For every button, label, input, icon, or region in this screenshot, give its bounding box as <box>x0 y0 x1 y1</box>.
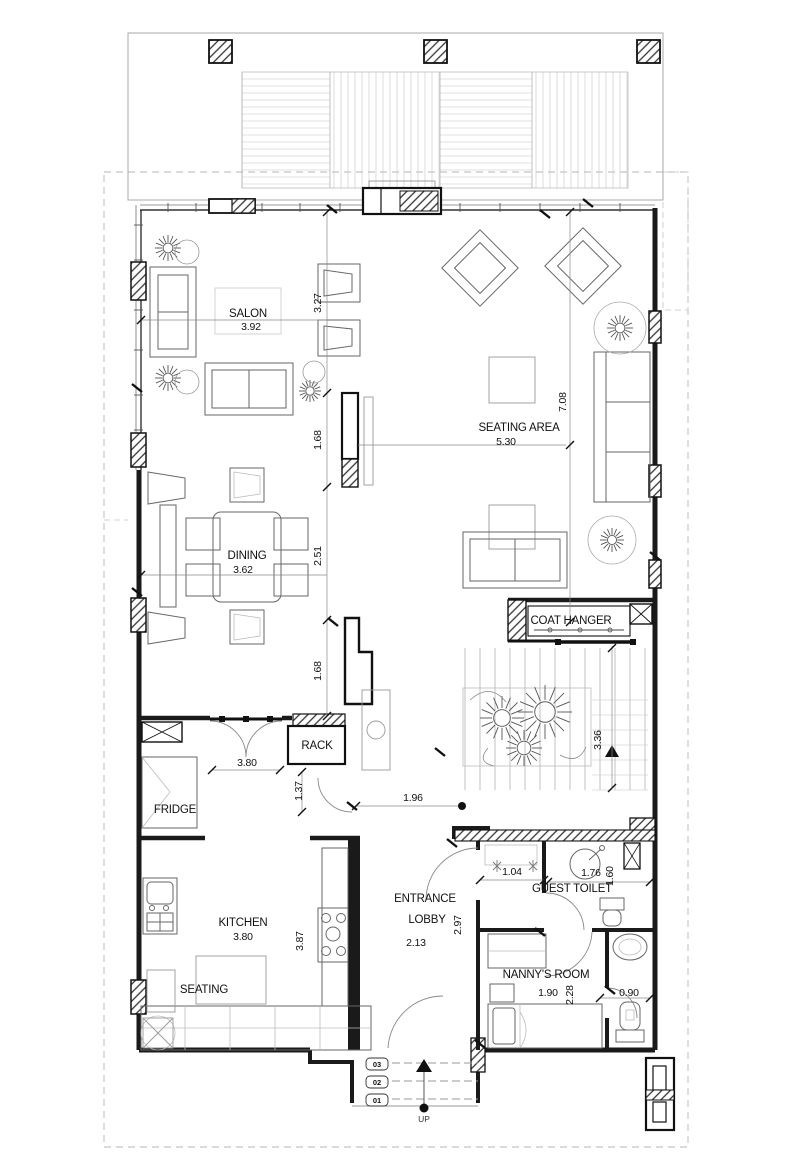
plant-icon <box>588 516 636 564</box>
side-table-icon <box>489 357 535 403</box>
sofa-icon <box>594 352 650 502</box>
tv-wall <box>342 393 358 459</box>
plant-icon <box>480 696 524 740</box>
stair-treads <box>465 648 648 790</box>
room-label-dining: DINING <box>227 550 266 562</box>
column-xbox-icon <box>624 843 640 869</box>
labels: SALON 3.92 3.27 SEATING AREA 5.30 7.08 1… <box>154 293 639 1005</box>
step-number: 03 <box>373 1060 381 1069</box>
kitchen <box>141 848 371 1050</box>
terrace <box>128 33 663 200</box>
dim-corridor-opening: 3.80 <box>237 757 257 769</box>
dim-salon-width: 3.92 <box>241 321 261 333</box>
dim-wc-width: 0.90 <box>619 987 639 999</box>
room-label-fridge: FRIDGE <box>154 804 197 816</box>
seating-area <box>442 228 650 588</box>
dim-hall-width: 1.96 <box>403 792 423 804</box>
column-xbox-icon <box>630 604 652 624</box>
step-number: 01 <box>373 1096 381 1105</box>
wardrobe-icon <box>488 934 546 968</box>
column-icon <box>424 40 447 63</box>
plant-icon <box>155 365 181 391</box>
wc-icon <box>600 898 624 926</box>
stair-arrow-icon <box>416 1059 432 1113</box>
side-table-icon <box>489 505 535 549</box>
floor-drain-icon <box>141 1016 175 1050</box>
table-icon <box>196 956 266 1004</box>
counter <box>141 1006 371 1050</box>
plants <box>155 235 646 564</box>
plant-icon <box>299 380 321 402</box>
room-label-coat-hanger: COAT HANGER <box>530 615 611 627</box>
column-icon <box>637 40 660 63</box>
room-label-kitchen-seating: SEATING <box>180 984 228 996</box>
dim-shower-width: 1.04 <box>502 866 522 878</box>
dim-nanny-width: 1.90 <box>538 987 558 999</box>
plant-icon <box>518 685 572 739</box>
stepped-wall <box>345 618 372 704</box>
nightstand-icon <box>490 984 514 1002</box>
dim-tv-wall-upper: 1.68 <box>312 430 324 450</box>
plant-icon <box>506 730 542 766</box>
terrace-columns <box>209 40 660 63</box>
dim-lobby-depth: 2.97 <box>452 915 464 935</box>
room-label-entrance: ENTRANCE <box>394 893 456 905</box>
plant-icon <box>470 685 586 766</box>
double-door-icon <box>210 716 282 757</box>
dim-kitchen-depth: 3.87 <box>294 931 306 951</box>
column-xbox-icon <box>142 722 182 742</box>
up-label: UP <box>418 1114 430 1124</box>
room-label-kitchen: KITCHEN <box>218 917 267 929</box>
bowl-icon <box>367 721 385 739</box>
room-label-rack: RACK <box>301 740 333 752</box>
sofa-icon <box>150 267 196 357</box>
dim-kitchen-width: 3.80 <box>233 931 253 943</box>
window-mullion-ticks <box>134 203 620 430</box>
door-swing-icon <box>388 996 443 1048</box>
tv-panel-icon <box>364 397 373 485</box>
armchair-icon <box>545 228 621 304</box>
floor-plan-page: 03 02 01 UP SALON 3.92 3.27 SEATING AR <box>0 0 786 1158</box>
deck-boards <box>242 72 627 188</box>
roof-overhang-outline <box>104 172 688 1147</box>
room-label-nannys-room: NANNY'S ROOM <box>503 969 590 981</box>
dim-dining-width: 3.62 <box>233 564 253 576</box>
room-label-salon: SALON <box>229 308 267 320</box>
plant-icon <box>155 235 181 261</box>
terrace-door <box>363 181 441 214</box>
wc-icon <box>616 1002 644 1042</box>
stair-hall <box>463 648 648 790</box>
floor-plan-drawing: 03 02 01 UP SALON 3.92 3.27 SEATING AR <box>0 0 786 1158</box>
sink-icon <box>143 878 177 934</box>
room-label-guest-toilet: GUEST TOILET <box>532 883 612 895</box>
entry-steps: 03 02 01 UP <box>366 1058 478 1124</box>
room-label-lobby: LOBBY <box>408 914 446 926</box>
armchair-icon <box>442 230 518 306</box>
room-label-seating-area: SEATING AREA <box>478 422 560 434</box>
dim-seating-width: 5.30 <box>496 436 516 448</box>
dim-fridge-nook: 1.37 <box>293 781 305 801</box>
sofa-icon <box>463 532 567 588</box>
dim-nanny-depth: 2.28 <box>564 985 576 1005</box>
bed-icon <box>488 1004 602 1048</box>
dim-dining-depth: 2.51 <box>312 546 324 566</box>
sofa-icon <box>205 363 293 415</box>
kitchen-lobby-wall <box>348 838 360 1050</box>
step-number: 02 <box>373 1078 381 1087</box>
plant-icon <box>594 302 646 354</box>
armchair-icon <box>318 264 360 302</box>
interior-walls <box>139 393 674 1130</box>
door-swing-icon <box>546 893 584 930</box>
basin-icon <box>613 934 647 960</box>
dim-dining-lower: 1.68 <box>312 661 324 681</box>
bottom-right-pier <box>646 1058 674 1130</box>
dim-lobby-width: 2.13 <box>406 937 426 949</box>
dim-salon-depth: 3.27 <box>312 293 324 313</box>
column-icon <box>209 40 232 63</box>
buffet-icon <box>160 505 176 607</box>
dim-toilet-width: 1.76 <box>581 867 601 879</box>
door-swing-icon <box>318 778 352 812</box>
dim-stair-hall: 3.36 <box>592 730 604 750</box>
armchair-icon <box>318 320 360 356</box>
dim-seating-depth: 7.08 <box>557 392 569 412</box>
